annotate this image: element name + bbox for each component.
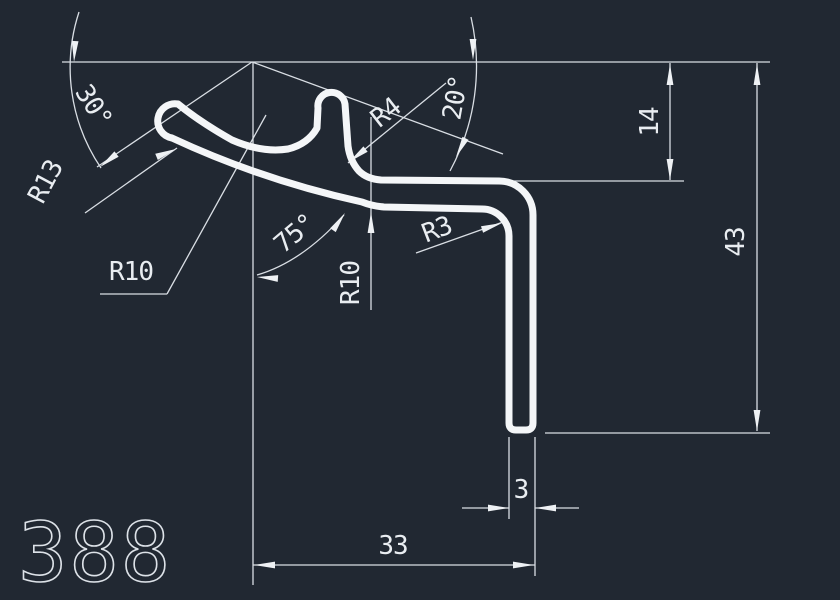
dim-radius-r10-left-label[interactable]: R10 (109, 257, 153, 287)
dimension-arrowhead (100, 151, 119, 167)
drawing-canvas[interactable]: 30° R13 R10 75° R10 R4 20° R3 14 43 3 33… (0, 0, 840, 600)
part-number-label[interactable]: 388 (18, 506, 172, 600)
dimension-arrowhead (155, 149, 176, 160)
dimension-lines[interactable] (62, 12, 770, 585)
dim-radius-r10-mid-label[interactable]: R10 (336, 261, 366, 305)
dim-length-14-label[interactable]: 14 (635, 107, 665, 137)
dimension-arrowhead (754, 410, 761, 431)
dim-angle-30-label[interactable]: 30° (68, 79, 117, 132)
dimension-texts[interactable]: 30° R13 R10 75° R10 R4 20° R3 14 43 3 33 (22, 74, 751, 561)
dimension-arrowhead (368, 212, 375, 233)
dim-radius-r3-label[interactable]: R3 (418, 211, 456, 250)
dim-angle-75-label[interactable]: 75° (269, 208, 322, 259)
dimension-arrowhead (488, 505, 509, 512)
dim-length-33-label[interactable]: 33 (378, 531, 407, 561)
dimension-arrowhead (535, 505, 556, 512)
dim-radius-r13-label[interactable]: R13 (22, 156, 69, 209)
ray-30deg (97, 62, 252, 167)
dimension-arrowhead (254, 562, 275, 569)
dimension-arrowhead (667, 159, 674, 180)
leader-r13 (85, 148, 177, 213)
dimension-arrowhead (754, 64, 761, 85)
dimension-arrowhead (513, 562, 534, 569)
dim-angle-20-label[interactable]: 20° (437, 74, 474, 123)
dim-length-3-label[interactable]: 3 (514, 475, 529, 505)
dimension-arrowhead (257, 275, 278, 282)
dimension-arrowhead (667, 64, 674, 85)
dimension-arrowhead (481, 223, 502, 233)
dim-length-43-label[interactable]: 43 (721, 227, 751, 256)
cad-model-space[interactable]: 30° R13 R10 75° R10 R4 20° R3 14 43 3 33… (0, 0, 840, 600)
dimension-arrowhead (72, 41, 79, 62)
dimension-arrowhead (330, 213, 345, 232)
dimension-arrowhead (456, 137, 469, 157)
